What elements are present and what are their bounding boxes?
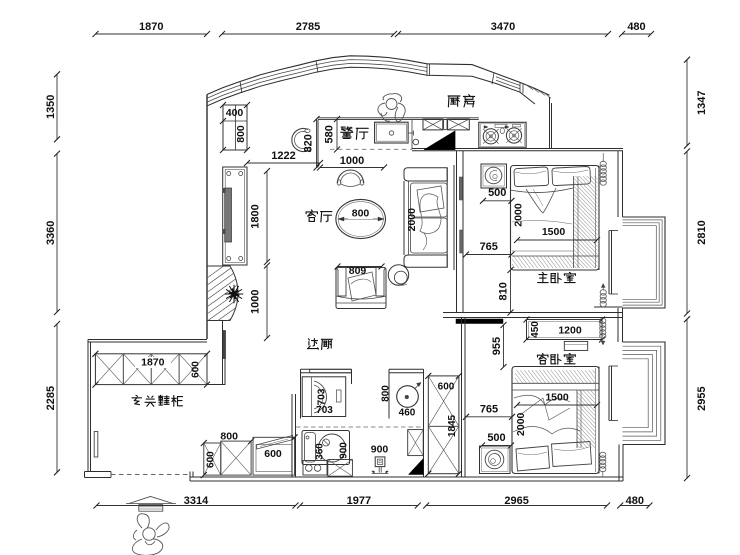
svg-text:1870: 1870 [141,357,165,369]
svg-text:1845: 1845 [447,414,458,437]
svg-text:1350: 1350 [45,95,57,119]
svg-text:460: 460 [399,407,416,418]
svg-text:2285: 2285 [45,386,57,410]
svg-text:2785: 2785 [296,21,320,33]
svg-text:450: 450 [530,321,541,338]
svg-text:810: 810 [498,282,510,300]
svg-text:580: 580 [324,125,336,143]
svg-text:2000: 2000 [515,412,527,436]
svg-text:480: 480 [627,21,645,33]
svg-text:2965: 2965 [504,495,528,507]
svg-text:500: 500 [488,187,506,199]
svg-text:800: 800 [235,125,247,143]
svg-text:703: 703 [316,405,333,416]
svg-text:600: 600 [191,361,202,378]
svg-text:1347: 1347 [696,90,708,114]
svg-text:955: 955 [491,337,503,355]
svg-text:809: 809 [349,265,367,277]
svg-text:1222: 1222 [271,150,295,162]
svg-text:800: 800 [352,208,370,220]
svg-text:765: 765 [480,404,498,416]
svg-text:3470: 3470 [491,21,515,33]
svg-text:1500: 1500 [542,226,566,238]
svg-text:1000: 1000 [250,290,262,314]
svg-text:1800: 1800 [250,204,262,228]
svg-text:600: 600 [205,451,216,468]
svg-text:500: 500 [487,432,505,444]
svg-text:900: 900 [339,442,350,459]
svg-text:800: 800 [381,385,392,402]
svg-text:1870: 1870 [139,21,163,33]
svg-text:1500: 1500 [545,391,569,403]
svg-text:1000: 1000 [340,155,364,167]
svg-text:600: 600 [264,448,282,460]
svg-text:3360: 3360 [45,221,57,245]
svg-text:400: 400 [226,107,244,119]
svg-text:1200: 1200 [558,325,582,337]
svg-text:480: 480 [626,495,644,507]
svg-text:1977: 1977 [347,495,371,507]
svg-text:703: 703 [317,388,328,405]
svg-text:800: 800 [220,430,238,442]
svg-text:2955: 2955 [696,386,708,410]
svg-text:765: 765 [480,241,498,253]
svg-text:600: 600 [438,382,455,393]
svg-text:3314: 3314 [184,495,209,507]
svg-text:360: 360 [314,443,325,460]
svg-text:900: 900 [371,444,389,456]
svg-text:2000: 2000 [406,208,418,232]
svg-text:820: 820 [303,134,315,152]
svg-text:2000: 2000 [513,203,525,227]
svg-text:2810: 2810 [696,220,708,244]
